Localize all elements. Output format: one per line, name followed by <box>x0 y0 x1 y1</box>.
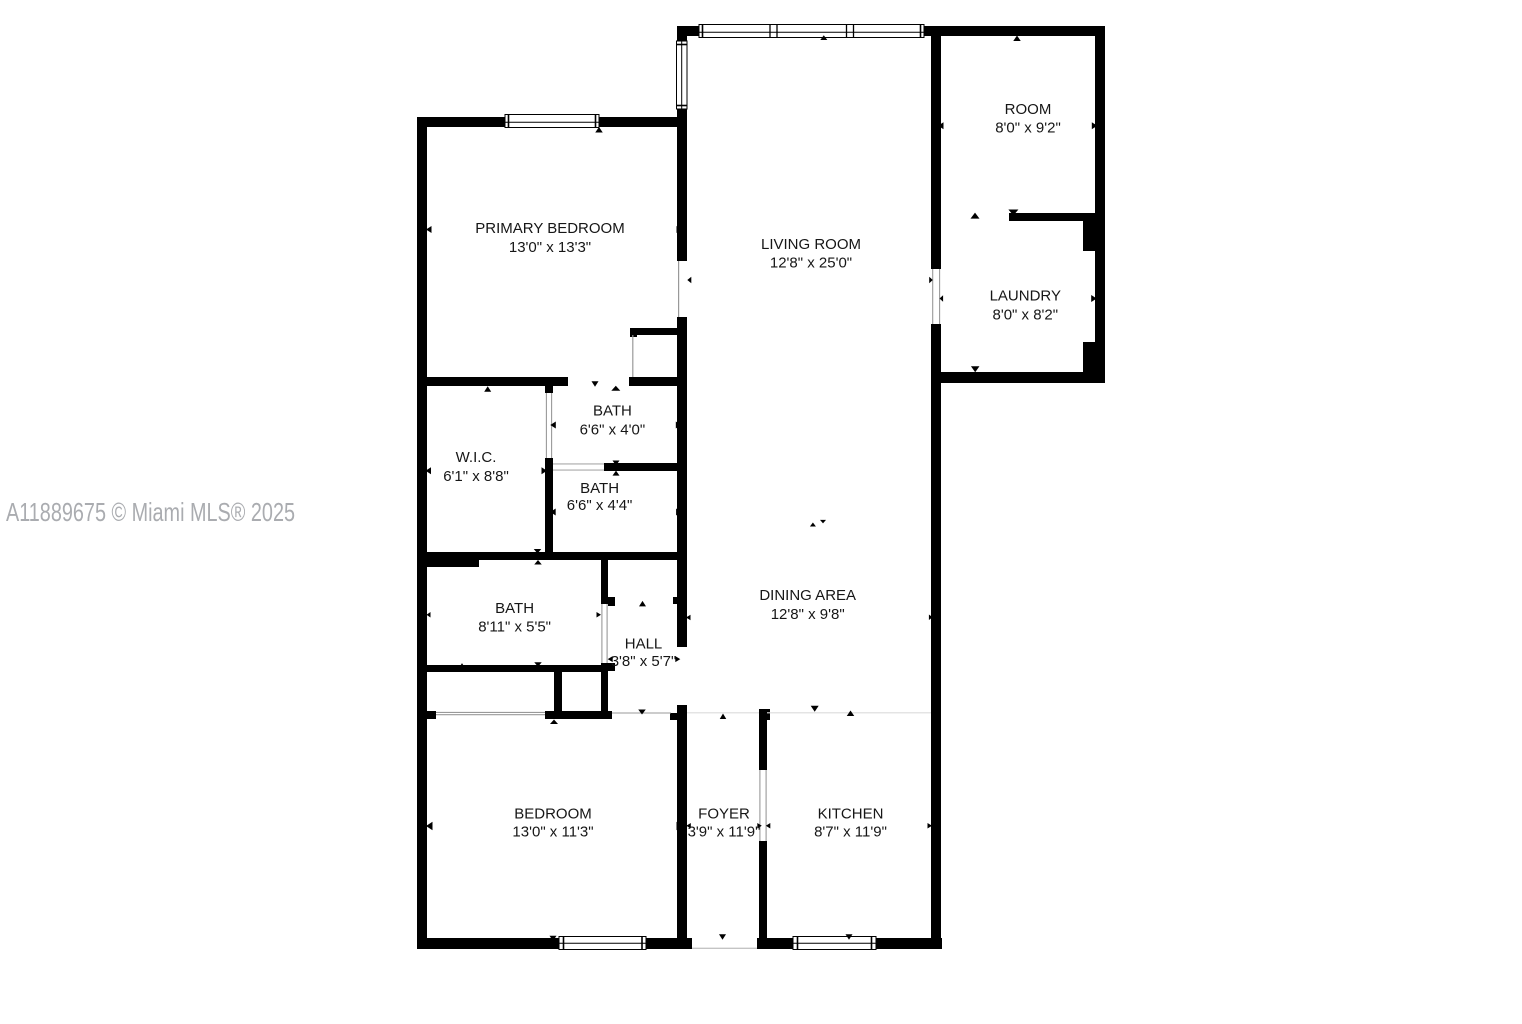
svg-text:PRIMARY BEDROOM: PRIMARY BEDROOM <box>475 220 624 237</box>
svg-text:12'8" x 25'0": 12'8" x 25'0" <box>770 255 852 272</box>
svg-text:BATH: BATH <box>495 600 534 617</box>
svg-text:BEDROOM: BEDROOM <box>514 806 592 823</box>
svg-text:KITCHEN: KITCHEN <box>818 806 884 823</box>
svg-text:12'8" x 9'8": 12'8" x 9'8" <box>771 606 845 623</box>
svg-text:8'0" x 8'2": 8'0" x 8'2" <box>993 306 1059 323</box>
svg-text:8'11" x 5'5": 8'11" x 5'5" <box>478 619 551 636</box>
svg-text:3'9" x 11'9": 3'9" x 11'9" <box>688 824 761 841</box>
svg-text:6'6" x 4'4": 6'6" x 4'4" <box>567 497 633 514</box>
svg-text:13'0" x 13'3": 13'0" x 13'3" <box>509 239 591 256</box>
svg-text:HALL: HALL <box>625 635 663 652</box>
svg-text:LAUNDRY: LAUNDRY <box>990 288 1061 305</box>
svg-text:FOYER: FOYER <box>698 806 750 823</box>
svg-text:BATH: BATH <box>580 480 619 497</box>
svg-text:LIVING ROOM: LIVING ROOM <box>761 236 861 253</box>
svg-text:3'8" x 5'7": 3'8" x 5'7" <box>611 653 677 670</box>
svg-text:DINING AREA: DINING AREA <box>759 587 856 604</box>
svg-text:6'6" x 4'0": 6'6" x 4'0" <box>580 421 646 438</box>
svg-text:A11889675 © Miami MLS® 2025: A11889675 © Miami MLS® 2025 <box>6 497 295 527</box>
svg-text:8'0" x 9'2": 8'0" x 9'2" <box>995 120 1061 137</box>
svg-text:6'1" x 8'8": 6'1" x 8'8" <box>443 468 509 485</box>
svg-text:8'7" x 11'9": 8'7" x 11'9" <box>814 824 887 841</box>
svg-text:13'0" x 11'3": 13'0" x 11'3" <box>512 824 593 841</box>
svg-text:W.I.C.: W.I.C. <box>456 449 497 466</box>
svg-text:ROOM: ROOM <box>1005 101 1052 118</box>
svg-text:BATH: BATH <box>593 403 632 420</box>
